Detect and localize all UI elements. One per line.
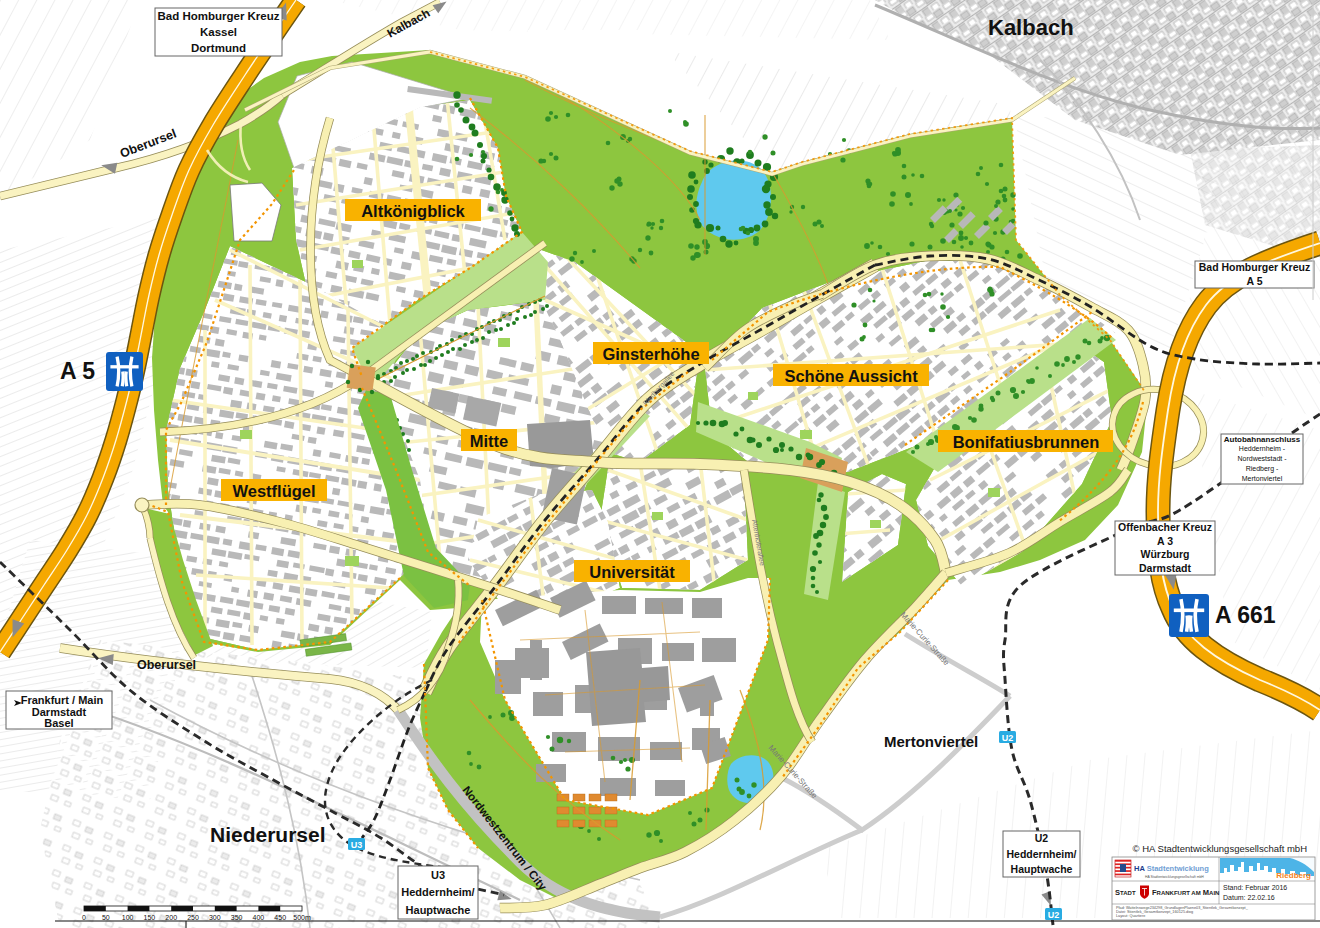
svg-text:Layout: Quartiere: Layout: Quartiere <box>1116 914 1145 918</box>
svg-text:Hauptwache: Hauptwache <box>1011 863 1073 875</box>
svg-text:Heddernheim/: Heddernheim/ <box>401 886 474 898</box>
svg-text:Universität: Universität <box>589 563 675 581</box>
svg-text:150: 150 <box>144 914 156 921</box>
svg-text:Dortmund: Dortmund <box>191 42 246 54</box>
svg-text:A 5: A 5 <box>60 358 95 384</box>
svg-text:A 3: A 3 <box>1157 535 1173 547</box>
svg-text:Mitte: Mitte <box>470 432 509 450</box>
svg-text:Autobahnanschluss: Autobahnanschluss <box>1224 435 1301 444</box>
svg-text:Stand: Februar 2016: Stand: Februar 2016 <box>1223 884 1287 891</box>
svg-text:Westflügel: Westflügel <box>232 482 315 500</box>
svg-text:U3: U3 <box>431 869 445 881</box>
svg-text:© HA Stadtentwicklungsgesellsc: © HA Stadtentwicklungsgesellschaft mbH <box>1133 843 1308 854</box>
svg-text:U3: U3 <box>351 840 363 850</box>
svg-text:STADT: STADT <box>1115 888 1136 897</box>
svg-text:U2: U2 <box>1035 832 1049 844</box>
svg-text:Niederursel: Niederursel <box>210 823 326 846</box>
svg-text:Schöne Aussicht: Schöne Aussicht <box>784 367 918 385</box>
svg-text:Basel: Basel <box>44 717 73 729</box>
svg-text:Heddernheim/: Heddernheim/ <box>1006 848 1076 860</box>
svg-text:HA Stadtentwicklung: HA Stadtentwicklung <box>1134 864 1209 873</box>
svg-text:Offenbacher Kreuz: Offenbacher Kreuz <box>1118 521 1212 533</box>
svg-text:Heddernheim -: Heddernheim - <box>1239 445 1286 452</box>
svg-text:Bonifatiusbrunnen: Bonifatiusbrunnen <box>953 433 1100 451</box>
svg-text:A 5: A 5 <box>1247 275 1263 287</box>
svg-text:300: 300 <box>209 914 221 921</box>
svg-text:Ginsterhöhe: Ginsterhöhe <box>602 345 699 363</box>
svg-text:350: 350 <box>231 914 243 921</box>
svg-text:50: 50 <box>102 914 110 921</box>
svg-text:100: 100 <box>122 914 134 921</box>
svg-text:Nordweststadt -: Nordweststadt - <box>1237 455 1287 462</box>
svg-text:0: 0 <box>82 914 86 921</box>
svg-text:400: 400 <box>253 914 265 921</box>
svg-text:Würzburg: Würzburg <box>1141 548 1190 560</box>
svg-text:Mertonviertel: Mertonviertel <box>884 733 978 750</box>
svg-text:250: 250 <box>187 914 199 921</box>
svg-text:Mertonviertel: Mertonviertel <box>1242 475 1283 482</box>
svg-text:Kalbach: Kalbach <box>988 15 1074 40</box>
svg-text:Bad Homburger Kreuz: Bad Homburger Kreuz <box>157 10 279 22</box>
svg-text:Riedberg: Riedberg <box>1276 871 1311 880</box>
svg-text:A 661: A 661 <box>1215 602 1276 628</box>
svg-text:U2: U2 <box>1002 733 1014 743</box>
svg-text:Darmstadt: Darmstadt <box>1139 562 1191 574</box>
svg-text:Kassel: Kassel <box>200 26 237 38</box>
svg-text:Datum: 22.02.16: Datum: 22.02.16 <box>1223 894 1275 901</box>
svg-text:500m: 500m <box>293 914 311 921</box>
svg-text:450: 450 <box>274 914 286 921</box>
svg-text:FRANKFURT AM MAIN: FRANKFURT AM MAIN <box>1152 888 1219 897</box>
svg-text:Riedberg -: Riedberg - <box>1246 465 1279 473</box>
svg-text:200: 200 <box>165 914 177 921</box>
svg-text:Oberursel: Oberursel <box>137 658 196 672</box>
svg-text:Hauptwache: Hauptwache <box>406 904 471 916</box>
svg-text:Altkönigblick: Altkönigblick <box>361 202 465 220</box>
svg-text:Frankfurt / Main: Frankfurt / Main <box>21 694 104 706</box>
svg-text:HA Stadtentwicklungsgesellscha: HA Stadtentwicklungsgesellschaft mbH <box>1145 875 1204 879</box>
svg-text:Bad Homburger Kreuz: Bad Homburger Kreuz <box>1199 261 1310 273</box>
svg-text:U2: U2 <box>1048 910 1060 920</box>
